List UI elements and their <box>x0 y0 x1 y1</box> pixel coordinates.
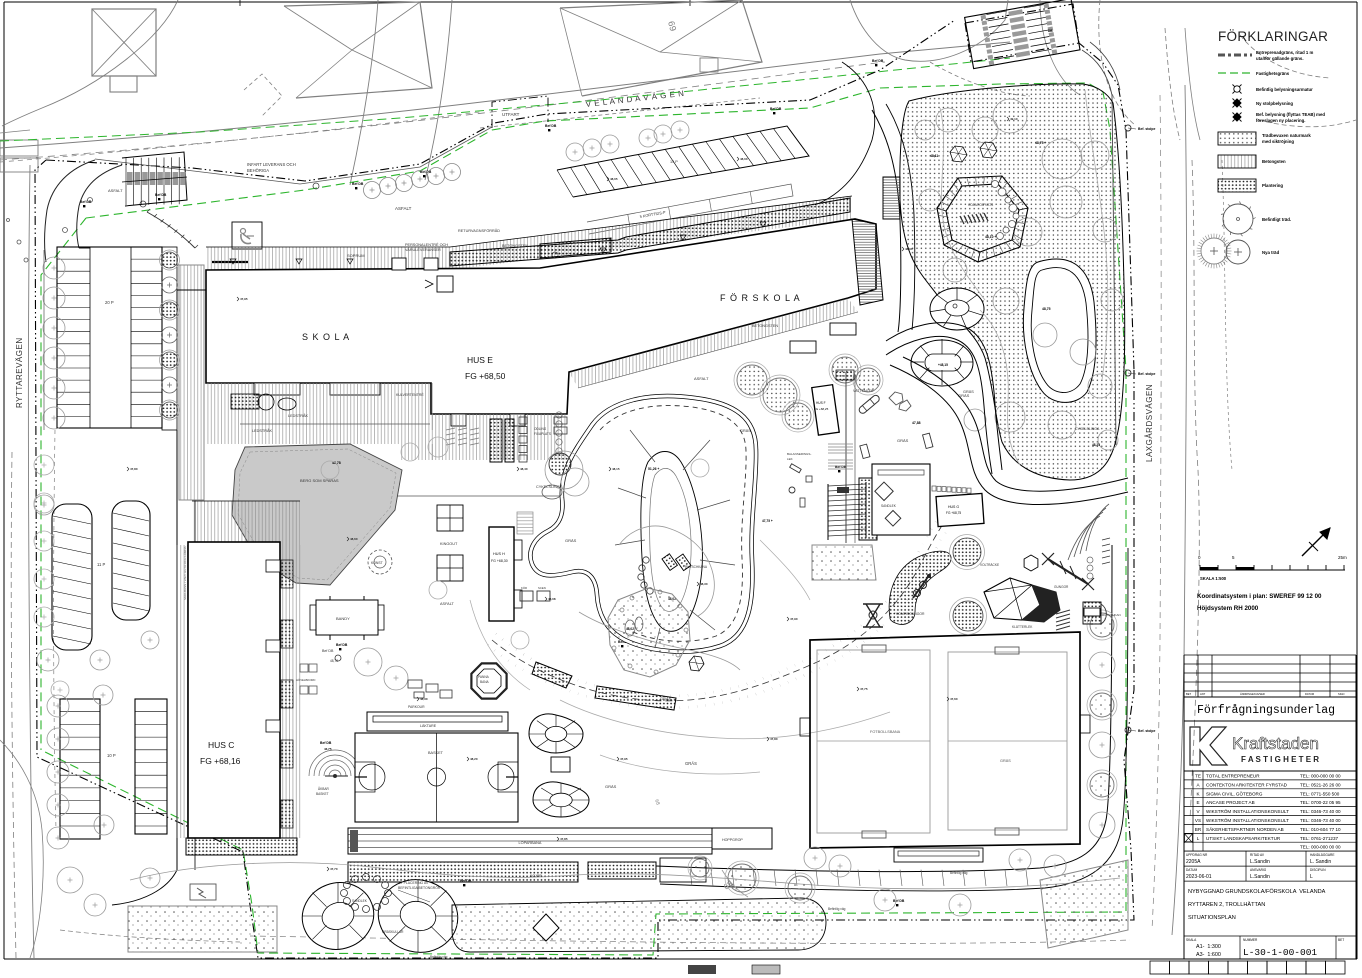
svg-text:51,26 +: 51,26 + <box>648 467 659 471</box>
svg-text:FG +68,25: FG +68,25 <box>814 407 829 411</box>
svg-text:DB: DB <box>1048 29 1053 33</box>
svg-text:föreslagen ny placering.: föreslagen ny placering. <box>1256 118 1305 123</box>
svg-text:SKALA: SKALA <box>1186 938 1197 942</box>
svg-text:KONST: KONST <box>371 561 383 565</box>
svg-text:Bef DB: Bef DB <box>336 643 348 647</box>
svg-text:LAXGÅRDSVÄGEN: LAXGÅRDSVÄGEN <box>1145 384 1154 462</box>
svg-text:BANA: BANA <box>480 680 490 684</box>
svg-text:UPPDRAG NR: UPPDRAG NR <box>1186 853 1208 857</box>
svg-text:49,10: 49,10 <box>1010 117 1018 121</box>
svg-text:TEL: 0346-73 40 00: TEL: 0346-73 40 00 <box>1300 818 1341 823</box>
svg-text:48,10 +: 48,10 + <box>985 235 996 239</box>
svg-text:DATUM: DATUM <box>1186 868 1197 872</box>
svg-text:LEDSTRÅK: LEDSTRÅK <box>252 428 273 433</box>
svg-text:Höjdsystem RH 2000: Höjdsystem RH 2000 <box>1197 605 1259 612</box>
svg-text:Bef. stolpe: Bef. stolpe <box>1138 372 1155 376</box>
svg-text:DATUM: DATUM <box>1305 692 1314 696</box>
svg-text:47,70: 47,70 <box>330 867 338 871</box>
svg-text:PERSONALENTRÉ OCH: PERSONALENTRÉ OCH <box>405 242 448 247</box>
svg-text:BET: BET <box>1338 938 1344 942</box>
svg-text:SÄKERHETSPARTNER NORDEN AB: SÄKERHETSPARTNER NORDEN AB <box>1206 826 1284 832</box>
svg-text:20 P: 20 P <box>105 300 114 305</box>
svg-text:RUTSCHKANA: RUTSCHKANA <box>685 565 708 569</box>
svg-text:ANCASE PROJECT AB: ANCASE PROJECT AB <box>1206 800 1255 805</box>
svg-text:BETONGSTEN: BETONGSTEN <box>752 324 778 328</box>
svg-text:BANDY: BANDY <box>336 616 350 621</box>
svg-text:48,30: 48,30 <box>700 582 708 586</box>
svg-text:47,75 +: 47,75 + <box>762 519 773 523</box>
svg-text:WIKSTRÖM INSTALLATIONSKONSULT: WIKSTRÖM INSTALLATIONSKONSULT <box>1206 808 1289 814</box>
svg-text:FG +68,30: FG +68,30 <box>491 559 508 563</box>
svg-text:KÖR: KÖR <box>521 586 527 590</box>
svg-text:BALANSERINGS-: BALANSERINGS- <box>787 452 811 456</box>
svg-text:FG +68,50: FG +68,50 <box>465 371 506 381</box>
svg-text:RYTTAREVÄGEN: RYTTAREVÄGEN <box>15 337 24 408</box>
svg-text:L.Sandin: L.Sandin <box>1250 859 1270 865</box>
svg-text:KULVERTENTRÉ: KULVERTENTRÉ <box>396 392 424 397</box>
svg-text:Plantering: Plantering <box>1262 183 1283 188</box>
svg-text:GUNGOR: GUNGOR <box>1054 585 1069 589</box>
svg-text:TEL: 0700-22 05 95: TEL: 0700-22 05 95 <box>1300 800 1341 805</box>
svg-text:UTFART: UTFART <box>502 112 520 117</box>
svg-text:47,60: 47,60 <box>950 697 958 701</box>
svg-text:Bef DB: Bef DB <box>872 59 884 63</box>
svg-text:TEL: 0521-26 26 00: TEL: 0521-26 26 00 <box>1300 782 1341 787</box>
svg-text:47,95: 47,95 <box>240 297 248 301</box>
svg-text:2023-06-01: 2023-06-01 <box>1186 874 1212 880</box>
svg-text:PARKOUR: PARKOUR <box>408 705 425 709</box>
svg-text:Bef. stolpe: Bef. stolpe <box>1138 127 1155 131</box>
svg-text:10 P: 10 P <box>107 753 116 758</box>
svg-text:NUMMER: NUMMER <box>1243 938 1258 942</box>
svg-text:TEL: 010-604 77 10: TEL: 010-604 77 10 <box>1300 827 1341 832</box>
svg-text:GRÄS: GRÄS <box>1000 759 1011 763</box>
svg-text:HUS G: HUS G <box>948 505 959 509</box>
svg-text:48,11: 48,11 <box>930 154 938 158</box>
svg-text:NYBYGGNAD GRUNDSKOLA/FÖRSKOLA: NYBYGGNAD GRUNDSKOLA/FÖRSKOLA VELANDA <box>1188 888 1326 895</box>
svg-text:48,75: 48,75 <box>1042 307 1051 311</box>
svg-text:SOPRUM: SOPRUM <box>347 253 365 258</box>
svg-text:KINGOUT: KINGOUT <box>440 542 458 546</box>
svg-text:FG +68,75: FG +68,75 <box>946 511 961 515</box>
svg-text:HÖVELBKORD: HÖVELBKORD <box>296 678 315 682</box>
svg-text:2205A: 2205A <box>1186 859 1201 865</box>
svg-text:HUS C: HUS C <box>208 740 234 750</box>
svg-text:Bef DB: Bef DB <box>770 107 782 111</box>
svg-text:47,80: 47,80 <box>130 467 138 471</box>
svg-text:Bef DB: Bef DB <box>352 182 364 186</box>
svg-text:KOJA/KOJPLATS: KOJA/KOJPLATS <box>968 203 993 207</box>
svg-text:E: E <box>1196 800 1199 805</box>
svg-text:FIXAPLATS: FIXAPLATS <box>534 432 551 436</box>
svg-text:TOTAL ENTREPRENEUR: TOTAL ENTREPRENEUR <box>1206 774 1260 779</box>
svg-text:Entreprenadgräns, ritad 1 m: Entreprenadgräns, ritad 1 m <box>1256 50 1313 55</box>
svg-text:KOJOR: KOJOR <box>530 874 542 878</box>
svg-text:BR: BR <box>1195 827 1202 832</box>
svg-text:Befintlig belysningsarmatur: Befintlig belysningsarmatur <box>1256 87 1313 92</box>
svg-text:48,78: 48,78 <box>330 659 338 663</box>
svg-text:PANNA: PANNA <box>478 675 490 679</box>
svg-text:Befintlig väg: Befintlig väg <box>430 955 448 959</box>
svg-text:med siktröjning: med siktröjning <box>1262 139 1294 144</box>
svg-text:CONTEKTON ARKITEKTER FYRSTAD: CONTEKTON ARKITEKTER FYRSTAD <box>1206 782 1288 787</box>
svg-text:48,60: 48,60 <box>350 537 358 541</box>
svg-text:A3- 1:600: A3- 1:600 <box>1196 952 1221 958</box>
svg-text:utanför gällande gräns.: utanför gällande gräns. <box>1256 56 1304 61</box>
svg-text:Bef DB: Bef DB <box>155 193 167 197</box>
svg-text:ÄNDRINGEN AVSER: ÄNDRINGEN AVSER <box>1240 692 1265 696</box>
svg-text:L. Sandin: L. Sandin <box>1310 859 1331 865</box>
svg-text:48,75 +: 48,75 + <box>1035 141 1046 145</box>
svg-text:TEL: 0771-550 500: TEL: 0771-550 500 <box>1300 791 1340 796</box>
svg-text:NY PLACERING AV: NY PLACERING AV <box>398 881 429 885</box>
svg-text:GRÄSKULLAR: GRÄSKULLAR <box>382 930 404 934</box>
svg-text:48,05: 48,05 <box>610 177 618 181</box>
svg-text:43,75: 43,75 <box>324 747 332 751</box>
svg-text:FOTBOLLSBANA: FOTBOLLSBANA <box>870 730 901 734</box>
svg-text:RETURVAGNSFÖRRÅD: RETURVAGNSFÖRRÅD <box>458 228 500 233</box>
svg-text:48,20: 48,20 <box>470 757 478 761</box>
svg-text:ANT: ANT <box>1200 692 1206 696</box>
svg-text:VS: VS <box>1195 818 1201 823</box>
svg-text:GRÄS: GRÄS <box>897 438 909 443</box>
svg-text:Trädbevuxen naturmark: Trädbevuxen naturmark <box>1262 133 1311 138</box>
svg-text:SIGMA CIVIL, GÖTEBORG: SIGMA CIVIL, GÖTEBORG <box>1206 790 1263 796</box>
svg-text:47,88: 47,88 <box>912 421 921 425</box>
svg-text:GRÄS: GRÄS <box>740 429 751 433</box>
svg-text:ÅKBAR: ÅKBAR <box>318 786 330 791</box>
svg-text:47,75: 47,75 <box>860 687 868 691</box>
svg-text:48,90: 48,90 <box>905 247 913 251</box>
svg-text:Bef DB: Bef DB <box>322 649 334 653</box>
svg-text:Bef. stolpe: Bef. stolpe <box>1138 729 1155 733</box>
svg-text:F A S T I G H E T E R: F A S T I G H E T E R <box>1241 755 1319 764</box>
svg-text:Koordinatsystem i plan: SWEREF: Koordinatsystem i plan: SWEREF 99 12 00 <box>1197 593 1322 600</box>
svg-text:SANDLEK: SANDLEK <box>881 504 897 508</box>
svg-text:SKALA 1:500: SKALA 1:500 <box>1200 576 1227 581</box>
svg-text:48,15: 48,15 <box>612 467 620 471</box>
svg-text:HOPPGROP: HOPPGROP <box>722 838 743 842</box>
svg-text:DISCIPLIN: DISCIPLIN <box>1310 868 1326 872</box>
svg-text:BEFINTLIGA BETONGRÖR: BEFINTLIGA BETONGRÖR <box>398 886 441 890</box>
svg-text:Nya träd: Nya träd <box>1262 250 1280 255</box>
svg-text:VOLTRÄCKE: VOLTRÄCKE <box>980 563 999 567</box>
svg-text:CYKELSLINGA: CYKELSLINGA <box>1075 427 1100 431</box>
svg-text:Förfrågningsunderlag: Förfrågningsunderlag <box>1197 704 1335 717</box>
svg-text:BASKET: BASKET <box>428 751 444 755</box>
svg-text:HUS F: HUS F <box>816 401 826 405</box>
svg-text:ASFALT: ASFALT <box>440 602 455 606</box>
svg-text:SCEN: SCEN <box>538 586 546 590</box>
svg-text:47,80: 47,80 <box>770 737 778 741</box>
svg-text:ASFALT: ASFALT <box>108 188 123 193</box>
svg-text:47,95: 47,95 <box>620 757 628 761</box>
svg-text:VATTENLEK: VATTENLEK <box>853 389 874 393</box>
svg-text:GRÄS: GRÄS <box>685 761 697 766</box>
svg-text:ASFALT: ASFALT <box>395 206 412 211</box>
svg-text:L-30-1-00-001: L-30-1-00-001 <box>1243 947 1317 958</box>
svg-text:SIGN: SIGN <box>1338 692 1344 696</box>
svg-text:INFART LEVERANS OCH: INFART LEVERANS OCH <box>247 162 296 167</box>
svg-text:BASKET: BASKET <box>316 792 329 796</box>
svg-text:RYTTAREN 2, TROLLHÄTTAN: RYTTAREN 2, TROLLHÄTTAN <box>1188 901 1265 908</box>
svg-text:GRÄS: GRÄS <box>565 538 577 543</box>
svg-text:FÖRKLARINGAR: FÖRKLARINGAR <box>1218 29 1328 44</box>
svg-text:BET: BET <box>1186 692 1191 696</box>
svg-text:BEHÖRIGA: BEHÖRIGA <box>247 168 269 173</box>
svg-text:Befintlig väg: Befintlig väg <box>828 907 846 911</box>
svg-text:HUS E: HUS E <box>467 355 493 365</box>
svg-text:ODLING: ODLING <box>534 427 547 431</box>
svg-text:RUTSCHKAN: RUTSCHKAN <box>1102 613 1121 617</box>
svg-text:F Ö R S K O L A: F Ö R S K O L A <box>720 293 801 303</box>
svg-text:KLÄTTERLEK: KLÄTTERLEK <box>1012 625 1033 629</box>
svg-text:LEK: LEK <box>787 457 793 461</box>
svg-text:BETONGSTEN: BETONGSTEN <box>502 244 528 248</box>
svg-text:L.Sandin: L.Sandin <box>1250 874 1270 880</box>
svg-text:Ny stolpbelysning: Ny stolpbelysning <box>1256 101 1293 106</box>
svg-text:RITAD AV: RITAD AV <box>1250 853 1265 857</box>
svg-text:Befintligt träd.: Befintligt träd. <box>1262 217 1291 222</box>
svg-text:WIKSTRÖM INSTALLATIONSKONSULT: WIKSTRÖM INSTALLATIONSKONSULT <box>1206 817 1289 823</box>
svg-text:Betongsten: Betongsten <box>1262 159 1286 164</box>
svg-text:TEL: 000-000 00 00: TEL: 000-000 00 00 <box>1300 774 1341 779</box>
svg-text:SANDLEK: SANDLEK <box>352 899 368 903</box>
svg-text:SITUATIONSPLAN: SITUATIONSPLAN <box>1188 915 1236 921</box>
svg-text:Bef DB: Bef DB <box>893 899 905 903</box>
svg-text:GRÄS: GRÄS <box>605 784 617 789</box>
svg-text:48,00: 48,00 <box>740 157 748 161</box>
svg-text:TE: TE <box>1195 774 1201 779</box>
svg-text:VARULEVERANSER: VARULEVERANSER <box>405 248 441 252</box>
svg-text:11 P: 11 P <box>97 562 106 567</box>
svg-text:TEL: 0346-73 40 00: TEL: 0346-73 40 00 <box>1300 809 1341 814</box>
svg-text:A1- 1:300: A1- 1:300 <box>1196 944 1221 950</box>
svg-text:48,30: 48,30 <box>420 697 428 701</box>
svg-text:GRÄS: GRÄS <box>660 696 672 701</box>
svg-text:25m: 25m <box>1338 555 1347 560</box>
svg-text:S K O L A: S K O L A <box>302 332 350 342</box>
svg-text:TEL: 000-000 00 00: TEL: 000-000 00 00 <box>1300 845 1341 850</box>
svg-text:47,90: 47,90 <box>790 617 798 621</box>
svg-text:HUS H: HUS H <box>493 552 505 556</box>
svg-text:Bef DB: Bef DB <box>545 124 557 128</box>
svg-text:Kraftstaden: Kraftstaden <box>1232 734 1319 753</box>
svg-text:FG +68,16: FG +68,16 <box>200 756 241 766</box>
svg-text:Bef DB: Bef DB <box>80 200 92 204</box>
svg-text:48,25: 48,25 <box>1092 443 1100 447</box>
svg-text:LÄKTARE: LÄKTARE <box>420 724 437 728</box>
svg-text:48,08: 48,08 <box>548 597 556 601</box>
svg-text:LEDSTRÅK: LEDSTRÅK <box>288 413 309 418</box>
svg-text:48,02: 48,02 <box>626 627 634 631</box>
svg-text:HANDLÄGGARE: HANDLÄGGARE <box>1310 853 1334 857</box>
svg-text:Bef DB: Bef DB <box>320 741 332 745</box>
svg-text:48,40: 48,40 <box>520 467 528 471</box>
svg-text:ASFALT: ASFALT <box>694 376 709 381</box>
svg-text:Befintlig väg: Befintlig väg <box>950 871 968 875</box>
svg-text:14 P: 14 P <box>670 160 678 164</box>
svg-text:ANSVARIG: ANSVARIG <box>1250 868 1267 872</box>
svg-text:UTSIKT LANDSKAPSARKITEKTUR: UTSIKT LANDSKAPSARKITEKTUR <box>1206 836 1281 841</box>
svg-text:+48,15: +48,15 <box>938 363 948 367</box>
svg-text:Bef. belysning (flyttas TEAB): Bef. belysning (flyttas TEAB) med <box>1256 112 1325 117</box>
svg-text:Fastighetsgräns: Fastighetsgräns <box>1256 71 1290 76</box>
svg-text:L: L <box>1197 836 1200 841</box>
svg-text:TEL: 0761-271237: TEL: 0761-271237 <box>1300 836 1339 841</box>
svg-text:L: L <box>1310 874 1313 880</box>
svg-text:47,85: 47,85 <box>560 837 568 841</box>
svg-text:LÖPARBANA: LÖPARBANA <box>519 841 542 845</box>
